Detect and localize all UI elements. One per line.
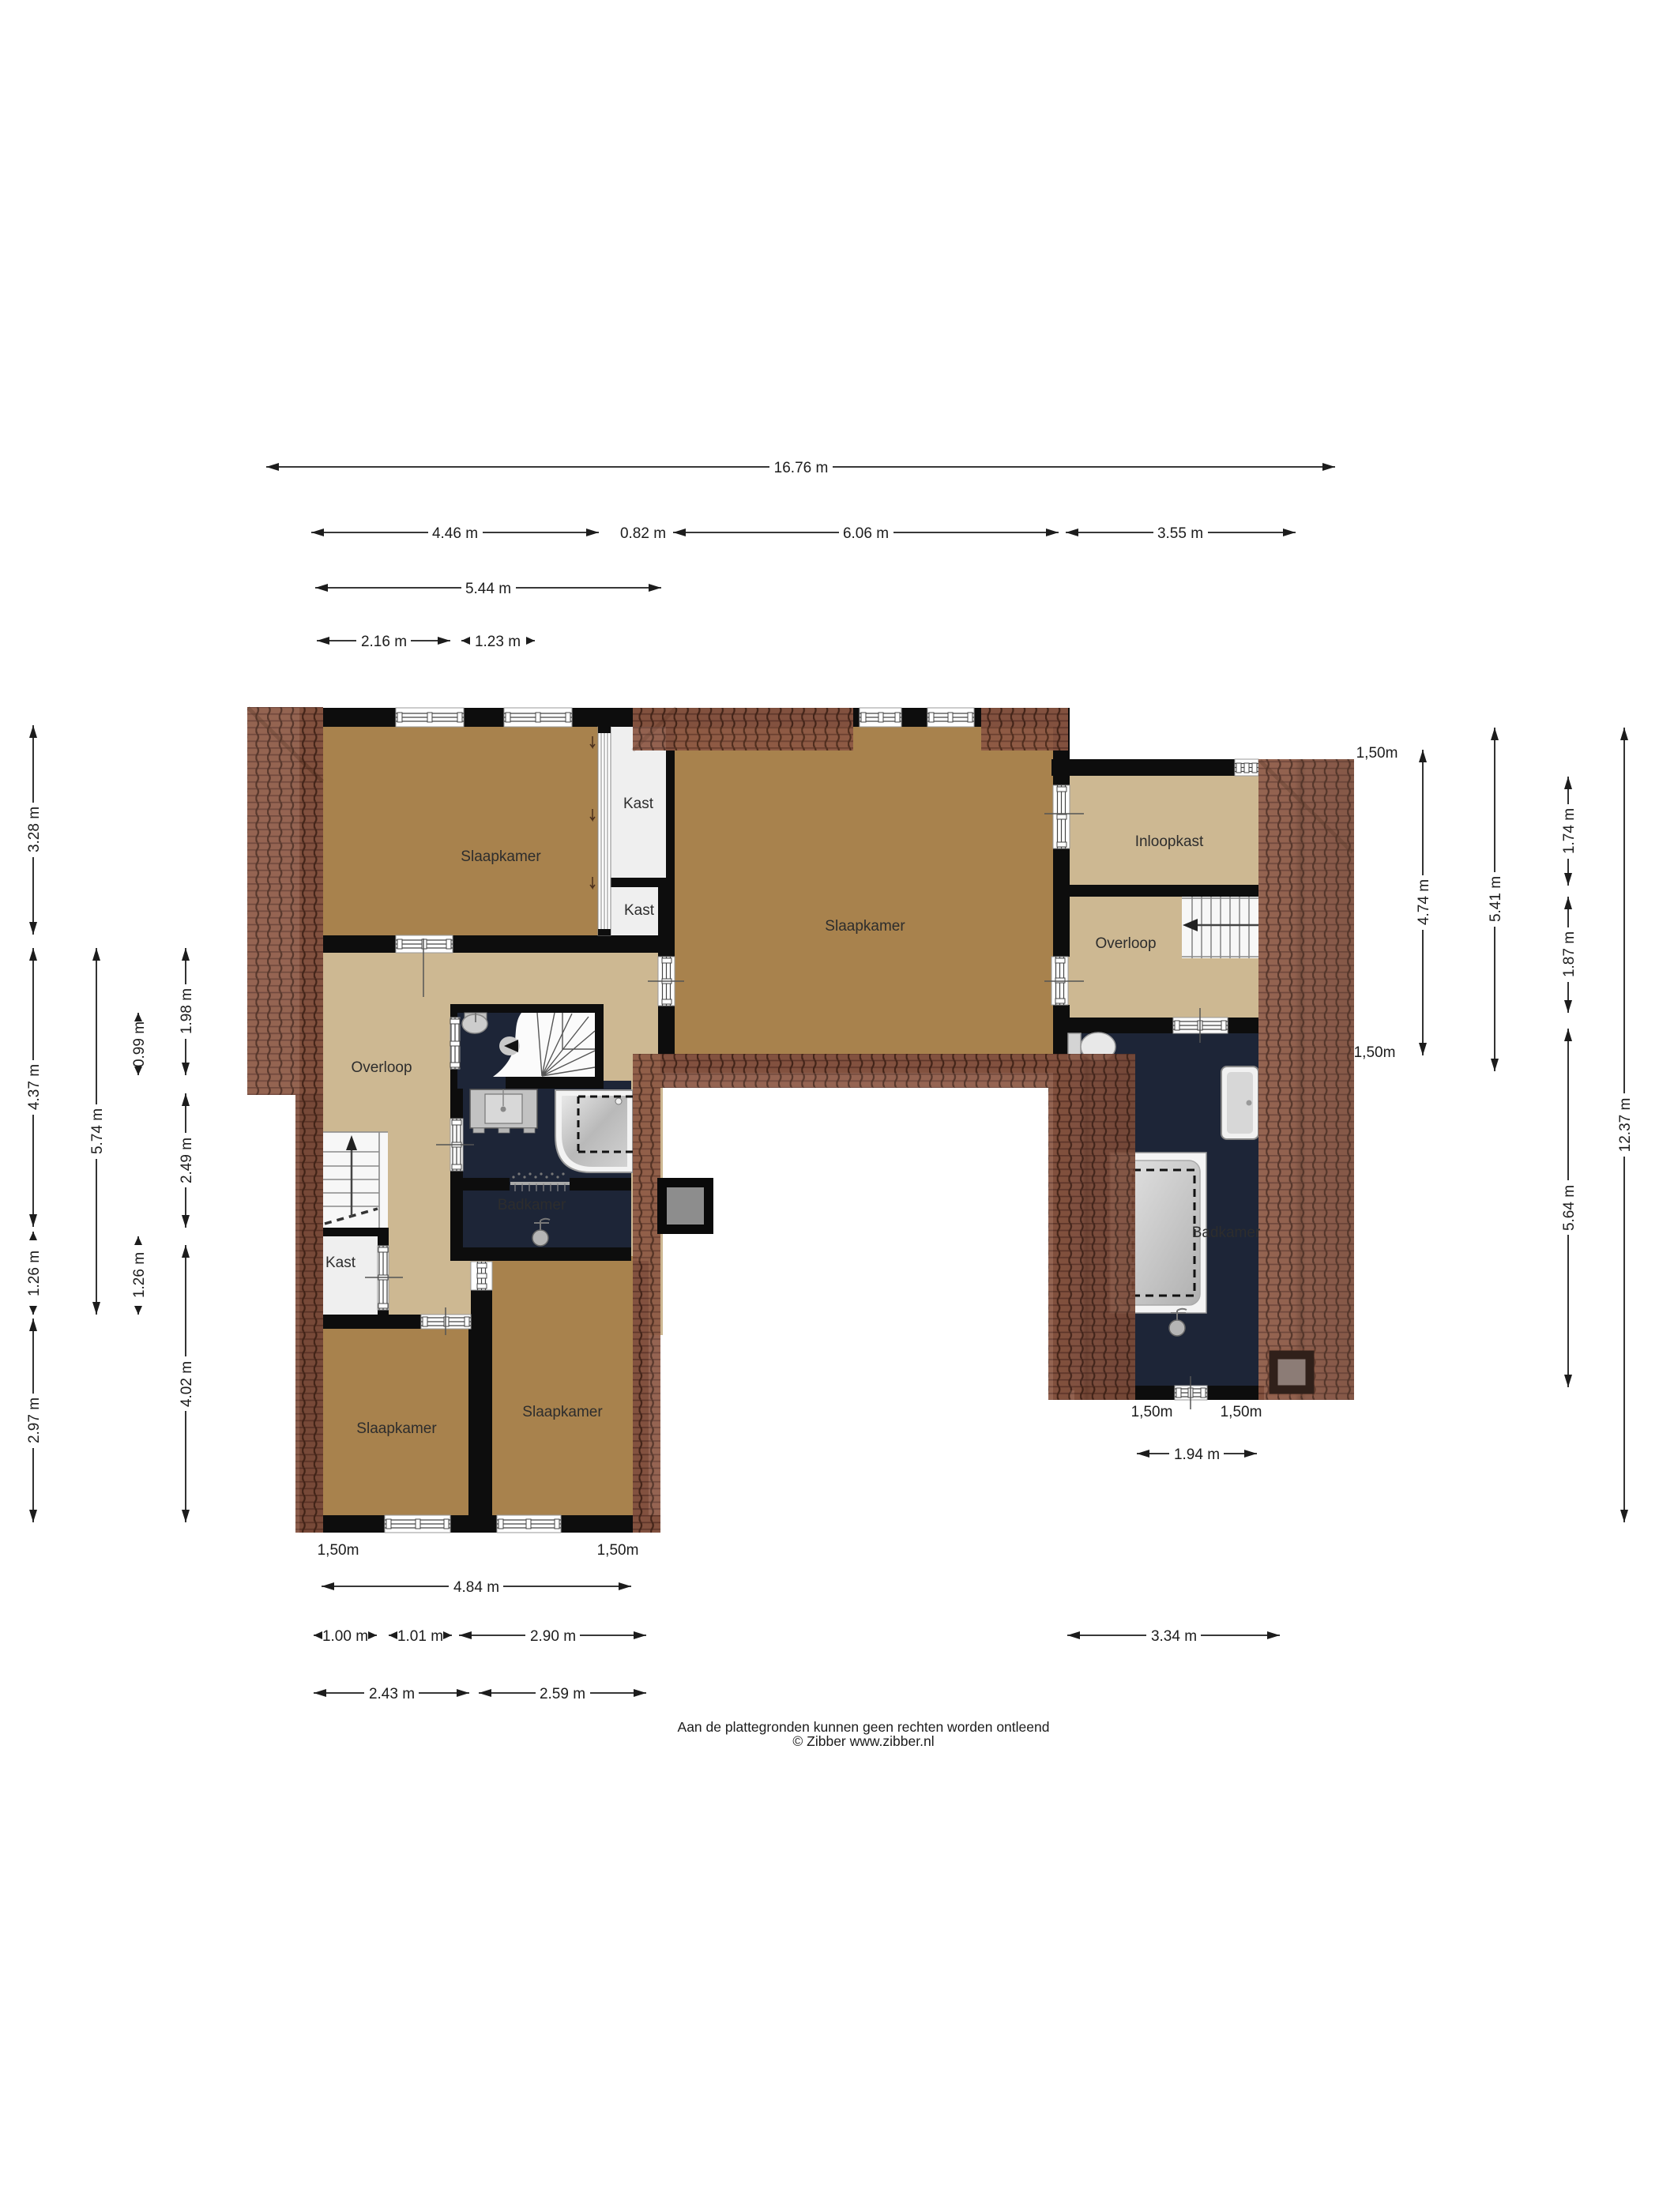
svg-text:© Zibber www.zibber.nl: © Zibber www.zibber.nl <box>792 1733 934 1749</box>
svg-text:Kast: Kast <box>624 902 655 919</box>
svg-text:1.00 m: 1.00 m <box>322 1628 368 1645</box>
svg-text:4.46 m: 4.46 m <box>432 525 478 542</box>
svg-text:3.34 m: 3.34 m <box>1151 1628 1197 1645</box>
svg-text:0.99 m: 0.99 m <box>131 1021 148 1067</box>
svg-text:Overloop: Overloop <box>351 1059 412 1076</box>
svg-text:2.16 m: 2.16 m <box>361 634 407 650</box>
svg-text:Slaapkamer: Slaapkamer <box>356 1420 437 1437</box>
svg-text:Overloop: Overloop <box>1095 935 1156 952</box>
svg-text:5.44 m: 5.44 m <box>465 581 511 597</box>
svg-text:2.90 m: 2.90 m <box>530 1628 576 1645</box>
svg-text:1,50m: 1,50m <box>318 1542 359 1559</box>
svg-text:Slaapkamer: Slaapkamer <box>522 1404 603 1420</box>
svg-text:1.98 m: 1.98 m <box>179 988 195 1034</box>
svg-text:1,50m: 1,50m <box>1356 745 1398 762</box>
svg-text:Slaapkamer: Slaapkamer <box>825 918 905 935</box>
svg-text:3.55 m: 3.55 m <box>1157 525 1203 542</box>
svg-text:2.49 m: 2.49 m <box>179 1138 195 1183</box>
svg-text:Aan de plattegronden kunnen ge: Aan de plattegronden kunnen geen rechten… <box>678 1719 1050 1735</box>
svg-text:1,50m: 1,50m <box>1354 1044 1396 1061</box>
svg-text:Badkamer: Badkamer <box>498 1197 566 1213</box>
svg-text:5.74 m: 5.74 m <box>89 1108 106 1154</box>
svg-text:16.76 m: 16.76 m <box>774 460 829 476</box>
svg-text:4.37 m: 4.37 m <box>26 1064 43 1110</box>
svg-text:6.06 m: 6.06 m <box>843 525 889 542</box>
svg-text:1.26 m: 1.26 m <box>131 1252 148 1298</box>
svg-text:1.23 m: 1.23 m <box>475 634 521 650</box>
svg-text:4.02 m: 4.02 m <box>179 1361 195 1407</box>
svg-text:Inloopkast: Inloopkast <box>1135 833 1204 850</box>
svg-text:Kast: Kast <box>623 796 654 812</box>
svg-text:1.87 m: 1.87 m <box>1561 931 1578 977</box>
svg-text:4.84 m: 4.84 m <box>453 1579 499 1596</box>
svg-text:Slaapkamer: Slaapkamer <box>461 848 541 865</box>
svg-text:0.82 m: 0.82 m <box>620 525 666 542</box>
svg-text:3.28 m: 3.28 m <box>26 807 43 852</box>
svg-text:1.01 m: 1.01 m <box>397 1628 443 1645</box>
svg-text:5.41 m: 5.41 m <box>1488 876 1504 922</box>
svg-text:2.43 m: 2.43 m <box>369 1686 415 1702</box>
svg-text:1.26 m: 1.26 m <box>26 1251 43 1296</box>
svg-text:1,50m: 1,50m <box>597 1542 639 1559</box>
svg-text:1,50m: 1,50m <box>1221 1404 1262 1420</box>
svg-text:Kast: Kast <box>325 1255 356 1271</box>
svg-text:2.97 m: 2.97 m <box>26 1398 43 1443</box>
svg-text:12.37 m: 12.37 m <box>1617 1098 1634 1153</box>
svg-text:Badkamer: Badkamer <box>1192 1224 1261 1241</box>
svg-text:2.59 m: 2.59 m <box>540 1686 585 1702</box>
svg-text:1.94 m: 1.94 m <box>1174 1446 1220 1463</box>
svg-text:5.64 m: 5.64 m <box>1561 1185 1578 1231</box>
svg-text:1,50m: 1,50m <box>1131 1404 1173 1420</box>
svg-text:4.74 m: 4.74 m <box>1416 879 1432 925</box>
svg-text:1.74 m: 1.74 m <box>1561 808 1578 854</box>
